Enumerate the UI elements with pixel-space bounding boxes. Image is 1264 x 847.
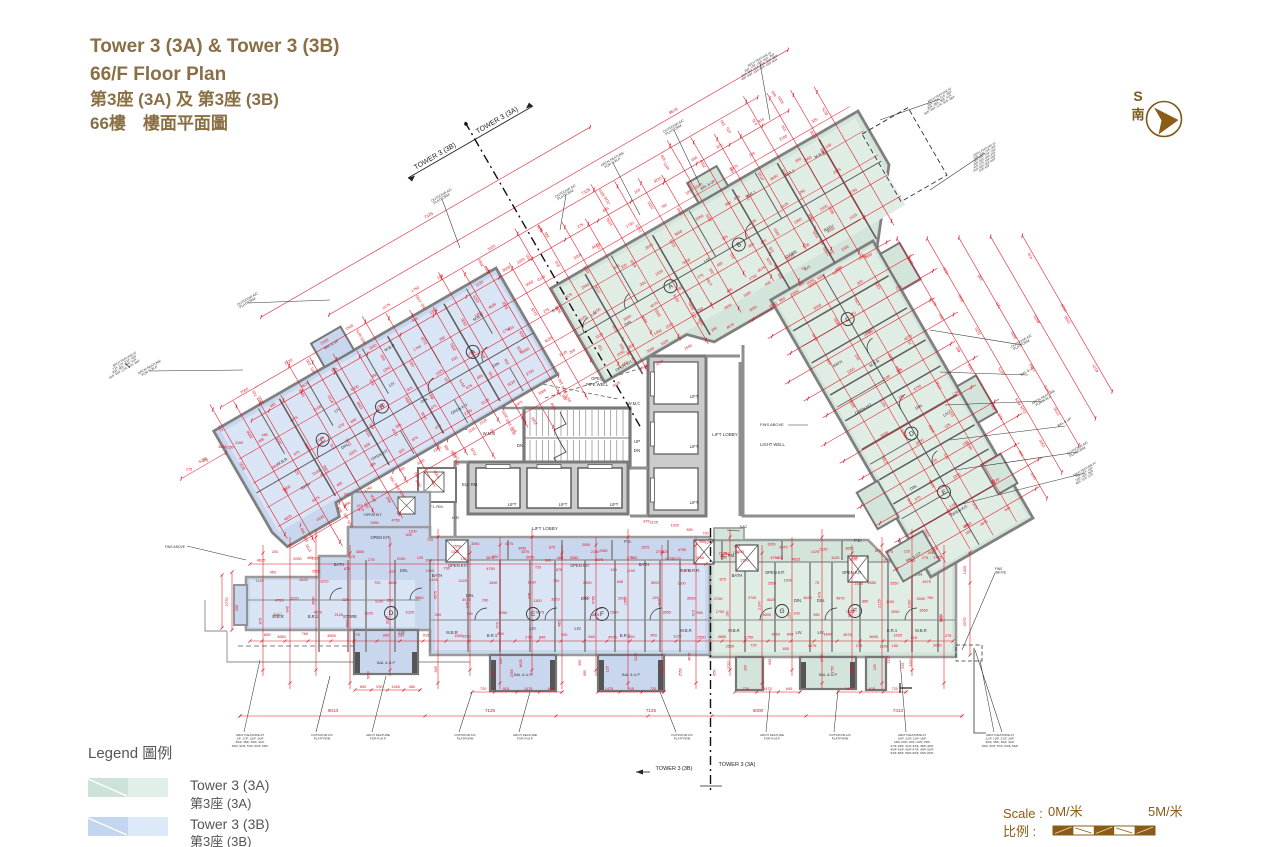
svg-text:275: 275 [922,556,928,560]
svg-text:100: 100 [583,595,590,600]
svg-text:5000: 5000 [917,597,925,601]
svg-text:BATH: BATH [732,573,743,578]
svg-text:3220: 3220 [386,616,390,624]
svg-text:150: 150 [628,634,635,639]
svg-text:1025: 1025 [671,524,679,528]
svg-text:FINS ABOVE: FINS ABOVE [165,545,186,549]
svg-text:150: 150 [892,644,898,648]
svg-text:720: 720 [743,687,749,691]
svg-text:720: 720 [480,687,486,691]
svg-text:760: 760 [466,612,472,616]
svg-text:Legend 圖例: Legend 圖例 [88,745,172,762]
svg-text:2125: 2125 [819,547,827,551]
svg-text:比例 :: 比例 : [1003,824,1036,839]
svg-text:3650: 3650 [327,633,336,638]
svg-text:950: 950 [724,552,730,556]
svg-text:7125: 7125 [485,708,496,713]
svg-text:2100: 2100 [591,550,599,554]
svg-text:1530: 1530 [451,550,459,554]
svg-text:3200: 3200 [909,659,913,667]
svg-text:DIN.: DIN. [794,598,802,603]
svg-text:875: 875 [556,568,562,572]
svg-text:915: 915 [423,632,430,637]
svg-text:1750: 1750 [716,610,724,614]
svg-text:LIFT: LIFT [610,502,619,507]
svg-text:760: 760 [482,598,489,603]
svg-text:3050: 3050 [518,547,526,551]
svg-text:1350: 1350 [425,569,433,573]
svg-text:3650: 3650 [356,550,364,554]
svg-text:760: 760 [553,579,559,583]
svg-text:2050: 2050 [891,610,899,614]
svg-text:B.R.1: B.R.1 [308,614,319,619]
svg-text:645: 645 [548,687,554,691]
svg-text:46/F, 52/F, 57/F, 63/F, 66/F: 46/F, 52/F, 57/F, 63/F, 66/F [982,744,1019,748]
svg-text:2550: 2550 [312,569,320,573]
svg-text:720: 720 [374,581,380,585]
svg-text:1100: 1100 [528,581,536,585]
svg-text:Tower 3 (3B): Tower 3 (3B) [190,816,269,832]
svg-text:2050: 2050 [293,556,302,561]
svg-text:200: 200 [235,605,239,611]
svg-text:650: 650 [783,647,789,651]
svg-text:275: 275 [349,554,356,559]
svg-text:南: 南 [1131,107,1144,122]
svg-text:2700: 2700 [727,661,731,669]
svg-text:100: 100 [793,612,799,616]
svg-text:3220: 3220 [290,595,299,600]
svg-text:1475: 1475 [681,568,689,572]
svg-text:125: 125 [417,556,423,560]
svg-text:3650: 3650 [415,595,424,600]
svg-text:5000: 5000 [651,581,659,585]
svg-text:3220: 3220 [634,653,638,661]
svg-text:1100: 1100 [409,530,417,534]
svg-text:3200: 3200 [767,543,775,547]
svg-text:4575: 4575 [594,557,603,562]
svg-text:100: 100 [491,671,495,677]
svg-text:PLATFORM: PLATFORM [832,737,849,741]
svg-text:5000: 5000 [273,613,281,617]
svg-text:LIFT LOBBY: LIFT LOBBY [712,432,737,437]
svg-text:1475: 1475 [845,687,853,691]
svg-text:3050: 3050 [933,644,941,648]
svg-text:1125: 1125 [831,555,839,560]
svg-text:4675: 4675 [688,653,692,661]
svg-text:BATH: BATH [334,562,345,567]
svg-text:720: 720 [750,644,756,648]
svg-text:150: 150 [726,611,730,617]
svg-text:LIFT: LIFT [559,502,568,507]
svg-text:4575: 4575 [434,591,438,599]
svg-text:DN: DN [517,443,524,448]
svg-text:75: 75 [815,581,819,585]
svg-text:46/F, 52/F, 57/F, 60/F, 66/F: 46/F, 52/F, 57/F, 60/F, 66/F [232,744,269,748]
svg-text:915: 915 [628,687,634,691]
svg-text:760: 760 [302,631,309,636]
svg-text:TOWER 3 (3A): TOWER 3 (3A) [719,762,756,768]
svg-text:S: S [1133,88,1142,104]
svg-text:7125: 7125 [646,708,657,713]
svg-text:325: 325 [342,597,349,602]
svg-text:LIFT: LIFT [508,502,517,507]
svg-text:3650: 3650 [662,611,670,615]
svg-text:BAL & U.P: BAL & U.P [622,673,640,677]
svg-text:UP: UP [634,439,640,444]
svg-text:760: 760 [852,556,858,560]
svg-text:645: 645 [434,666,438,672]
svg-text:275: 275 [186,467,192,471]
svg-text:100: 100 [611,568,617,572]
svg-text:2550: 2550 [570,555,579,560]
svg-text:4675: 4675 [536,610,544,614]
svg-text:850: 850 [687,528,693,532]
svg-text:4575: 4575 [505,542,513,546]
svg-text:850: 850 [497,631,504,636]
svg-text:645: 645 [545,558,552,563]
svg-text:1025: 1025 [405,611,413,615]
svg-text:150: 150 [461,556,468,561]
svg-text:470: 470 [496,622,500,628]
svg-text:690: 690 [360,685,366,689]
svg-text:125: 125 [777,556,783,560]
svg-text:645: 645 [617,580,623,584]
svg-text:3650: 3650 [718,634,727,639]
svg-text:PLATFORM: PLATFORM [457,737,474,741]
svg-text:66/F Floor Plan: 66/F Floor Plan [90,64,226,85]
svg-text:4675: 4675 [486,556,494,560]
svg-text:OPEN KIT.: OPEN KIT. [364,512,383,517]
svg-text:3220: 3220 [551,596,560,601]
svg-text:BATH: BATH [639,562,650,567]
svg-text:4750: 4750 [275,598,284,603]
svg-text:Scale :: Scale : [1003,806,1043,821]
svg-text:1100: 1100 [375,599,384,604]
svg-text:5M/米: 5M/米 [1148,804,1183,819]
svg-text:480: 480 [409,685,415,689]
svg-text:125: 125 [904,549,910,553]
svg-text:720: 720 [703,531,709,535]
svg-text:3650: 3650 [277,634,286,639]
svg-text:125: 125 [606,666,610,672]
svg-text:325: 325 [940,616,944,622]
svg-text:1750: 1750 [820,654,824,662]
svg-text:1100: 1100 [696,556,704,560]
svg-text:2700: 2700 [714,597,722,601]
svg-text:1025: 1025 [893,632,902,637]
svg-text:75: 75 [355,632,359,637]
svg-text:2100: 2100 [908,600,912,608]
svg-text:Tower 3 (3A) & Tower 3 (3B): Tower 3 (3A) & Tower 3 (3B) [90,36,340,57]
svg-text:275: 275 [528,593,532,599]
svg-text:2100: 2100 [312,556,321,561]
svg-text:53/F-56/F, 58/F-60/F, 63/F-65/: 53/F-56/F, 58/F-60/F, 63/F-65/F [891,751,934,755]
svg-text:645: 645 [768,659,772,665]
svg-text:4750: 4750 [486,567,494,571]
svg-text:1100: 1100 [627,569,635,573]
svg-text:1100: 1100 [705,541,713,545]
svg-text:275: 275 [466,602,470,608]
svg-text:1465: 1465 [391,685,399,689]
svg-text:470: 470 [818,592,822,598]
svg-text:2550: 2550 [583,581,591,585]
svg-text:1750: 1750 [831,666,835,674]
svg-text:4750: 4750 [592,596,596,604]
svg-text:LIV.: LIV. [575,626,582,631]
svg-text:第3座 (3A) 及 第3座 (3B): 第3座 (3A) 及 第3座 (3B) [90,89,279,109]
svg-text:2125: 2125 [650,521,658,525]
svg-text:3650: 3650 [845,546,853,550]
svg-text:950: 950 [734,545,740,549]
svg-text:2100: 2100 [854,582,862,586]
svg-text:1125: 1125 [846,610,854,614]
svg-text:645: 645 [786,687,792,691]
svg-text:FINS ABOVE: FINS ABOVE [760,422,784,427]
svg-text:645: 645 [588,634,595,639]
svg-text:1750: 1750 [740,557,749,562]
svg-text:1540: 1540 [610,610,618,614]
svg-text:LIFT: LIFT [690,444,699,449]
svg-text:M.B.R: M.B.R [915,628,926,633]
svg-text:3050: 3050 [687,596,696,601]
svg-text:275: 275 [525,634,532,639]
svg-text:DIN.: DIN. [400,568,408,573]
svg-text:950: 950 [270,570,276,574]
svg-text:1100: 1100 [886,600,894,604]
svg-text:5000: 5000 [763,613,771,617]
svg-text:75: 75 [884,558,888,563]
svg-text:3370: 3370 [962,617,967,627]
svg-text:875: 875 [720,578,726,582]
svg-text:760: 760 [927,596,933,600]
svg-text:第3座 (3A): 第3座 (3A) [190,796,251,811]
svg-text:875: 875 [875,549,881,553]
svg-text:4625: 4625 [299,578,307,582]
svg-text:645: 645 [539,634,546,639]
svg-text:7413: 7413 [893,708,904,713]
svg-text:950: 950 [650,632,657,637]
svg-text:第3座 (3B): 第3座 (3B) [190,834,251,847]
svg-text:1100: 1100 [880,644,888,648]
svg-text:1750: 1750 [745,635,754,640]
svg-text:H.R.: H.R. [452,515,460,520]
svg-text:BAL & U.P: BAL & U.P [514,673,532,677]
svg-text:1350: 1350 [624,597,628,605]
svg-text:4575: 4575 [314,611,322,615]
svg-text:3650: 3650 [869,634,878,639]
svg-text:TOWER 3 (3B): TOWER 3 (3B) [656,766,693,772]
svg-text:850: 850 [862,600,868,604]
svg-text:485: 485 [307,556,313,560]
svg-text:1125: 1125 [256,579,264,583]
svg-text:250: 250 [398,632,405,637]
svg-text:LIFT: LIFT [690,500,699,505]
svg-text:4575: 4575 [843,632,852,637]
svg-text:275: 275 [945,633,952,638]
svg-text:B.R.1: B.R.1 [487,633,498,638]
svg-text:1540: 1540 [784,579,792,583]
svg-text:W.M.C: W.M.C [628,401,641,406]
svg-text:4675: 4675 [779,545,787,549]
svg-text:1100: 1100 [533,598,542,603]
svg-text:200: 200 [425,558,432,563]
svg-text:4625: 4625 [803,596,811,600]
svg-text:470: 470 [627,556,633,560]
svg-text:ELV RM.: ELV RM. [462,482,478,487]
svg-text:915: 915 [911,635,918,640]
svg-text:720: 720 [650,687,656,691]
svg-text:5000: 5000 [346,618,350,626]
svg-text:200: 200 [344,493,350,497]
svg-text:200: 200 [909,558,916,563]
svg-text:2550: 2550 [768,581,776,585]
svg-text:2550: 2550 [890,582,898,586]
svg-text:1350: 1350 [388,581,396,585]
svg-text:2550: 2550 [697,635,706,640]
svg-text:100: 100 [873,664,877,670]
svg-text:4575: 4575 [608,635,617,640]
svg-text:1025: 1025 [963,566,967,574]
svg-text:4625: 4625 [791,557,800,562]
svg-text:2550: 2550 [453,545,461,549]
svg-text:875: 875 [259,618,263,624]
svg-text:1475: 1475 [811,550,819,554]
svg-text:915: 915 [869,687,875,691]
svg-text:Tower 3 (3A): Tower 3 (3A) [190,777,269,793]
svg-text:275: 275 [368,557,375,562]
svg-text:950: 950 [383,633,390,638]
svg-text:PLATFORM: PLATFORM [674,737,691,741]
svg-text:850: 850 [264,632,271,637]
svg-text:PLATFORM: PLATFORM [314,737,331,741]
svg-text:875: 875 [549,546,555,550]
svg-text:FOR R.M.P: FOR R.M.P [517,737,533,741]
svg-text:LIV.: LIV. [796,630,803,635]
svg-text:2050: 2050 [582,543,590,547]
svg-text:2700: 2700 [748,596,756,600]
svg-text:720: 720 [535,566,541,570]
svg-text:4675: 4675 [808,644,816,648]
svg-text:3050: 3050 [526,555,535,560]
svg-text:FOR R.M.P: FOR R.M.P [764,737,780,741]
svg-text:1475: 1475 [524,687,532,691]
svg-text:3220: 3220 [320,580,328,584]
svg-text:1475: 1475 [763,687,771,691]
svg-text:OPEN KIT: OPEN KIT [370,535,390,540]
svg-text:DN: DN [634,448,641,453]
svg-text:LIFT LOBBY: LIFT LOBBY [532,526,557,531]
svg-text:4750: 4750 [678,548,686,552]
svg-text:720: 720 [427,538,433,542]
svg-text:645: 645 [787,631,794,636]
svg-text:250: 250 [387,597,394,602]
svg-text:4575: 4575 [836,597,844,601]
svg-text:645: 645 [286,606,290,612]
svg-text:470: 470 [357,504,363,508]
svg-text:1100: 1100 [677,581,685,585]
svg-text:F.L RM.: F.L RM. [430,504,444,509]
svg-text:125: 125 [788,613,792,619]
svg-text:LIFT: LIFT [690,394,699,399]
svg-text:485: 485 [558,621,562,627]
svg-text:2125: 2125 [334,613,342,617]
svg-text:EAD: EAD [740,525,748,529]
svg-text:4575: 4575 [521,550,529,554]
svg-text:2700: 2700 [656,550,664,554]
svg-text:5000: 5000 [366,671,370,679]
svg-text:2050: 2050 [510,669,514,677]
svg-text:650: 650 [813,613,819,617]
svg-text:4575: 4575 [922,580,930,584]
svg-text:3050: 3050 [771,632,780,637]
svg-text:2100: 2100 [235,441,243,445]
svg-text:2550: 2550 [868,581,876,585]
svg-text:275: 275 [856,644,862,648]
svg-text:1475: 1475 [933,555,942,560]
svg-text:1025: 1025 [458,579,466,583]
svg-text:OPEN KIT.: OPEN KIT. [765,570,785,575]
svg-text:3650: 3650 [312,597,316,605]
svg-text:2770: 2770 [224,597,229,607]
svg-text:2550: 2550 [599,549,607,553]
svg-text:1540: 1540 [489,581,497,585]
svg-text:950: 950 [697,611,703,615]
svg-text:F: F [600,611,604,618]
svg-text:BAL & U.P: BAL & U.P [377,661,395,665]
svg-text:0M/米: 0M/米 [1048,804,1083,819]
svg-text:4625: 4625 [591,613,599,617]
svg-text:875: 875 [344,567,350,571]
svg-text:1475: 1475 [605,687,613,691]
svg-text:2100: 2100 [758,601,762,609]
svg-text:875: 875 [643,520,649,524]
svg-text:4750: 4750 [391,518,399,522]
svg-text:4575: 4575 [462,597,471,602]
svg-text:1125: 1125 [673,633,681,638]
svg-text:FOR R.M.P: FOR R.M.P [370,737,386,741]
svg-text:M.B.R: M.B.R [680,628,691,633]
svg-text:850: 850 [712,669,716,675]
svg-text:250: 250 [435,613,441,617]
svg-text:930: 930 [376,685,382,689]
svg-text:ABOVE: ABOVE [995,571,1006,575]
svg-text:915: 915 [901,663,905,669]
svg-text:2125: 2125 [878,599,882,607]
svg-text:950: 950 [583,670,587,676]
svg-text:760: 760 [444,566,450,570]
svg-text:100: 100 [499,658,503,664]
svg-text:4625: 4625 [519,659,523,667]
svg-text:2550: 2550 [726,644,734,648]
svg-text:915: 915 [658,599,662,605]
svg-text:950: 950 [578,660,582,666]
svg-text:720: 720 [892,687,898,691]
svg-text:485: 485 [557,556,563,560]
svg-text:4625: 4625 [257,558,266,563]
svg-text:875: 875 [389,570,395,574]
svg-text:LIV.: LIV. [530,626,537,631]
svg-text:2100: 2100 [397,556,406,561]
svg-text:915: 915 [692,610,696,616]
svg-text:200: 200 [744,665,748,671]
svg-text:1100: 1100 [430,578,438,582]
svg-text:P.D.: P.D. [854,538,861,543]
svg-text:200: 200 [272,550,278,554]
svg-text:2550: 2550 [679,668,683,676]
svg-text:G: G [779,608,784,615]
svg-text:915: 915 [503,687,509,691]
svg-text:3220: 3220 [672,556,681,561]
